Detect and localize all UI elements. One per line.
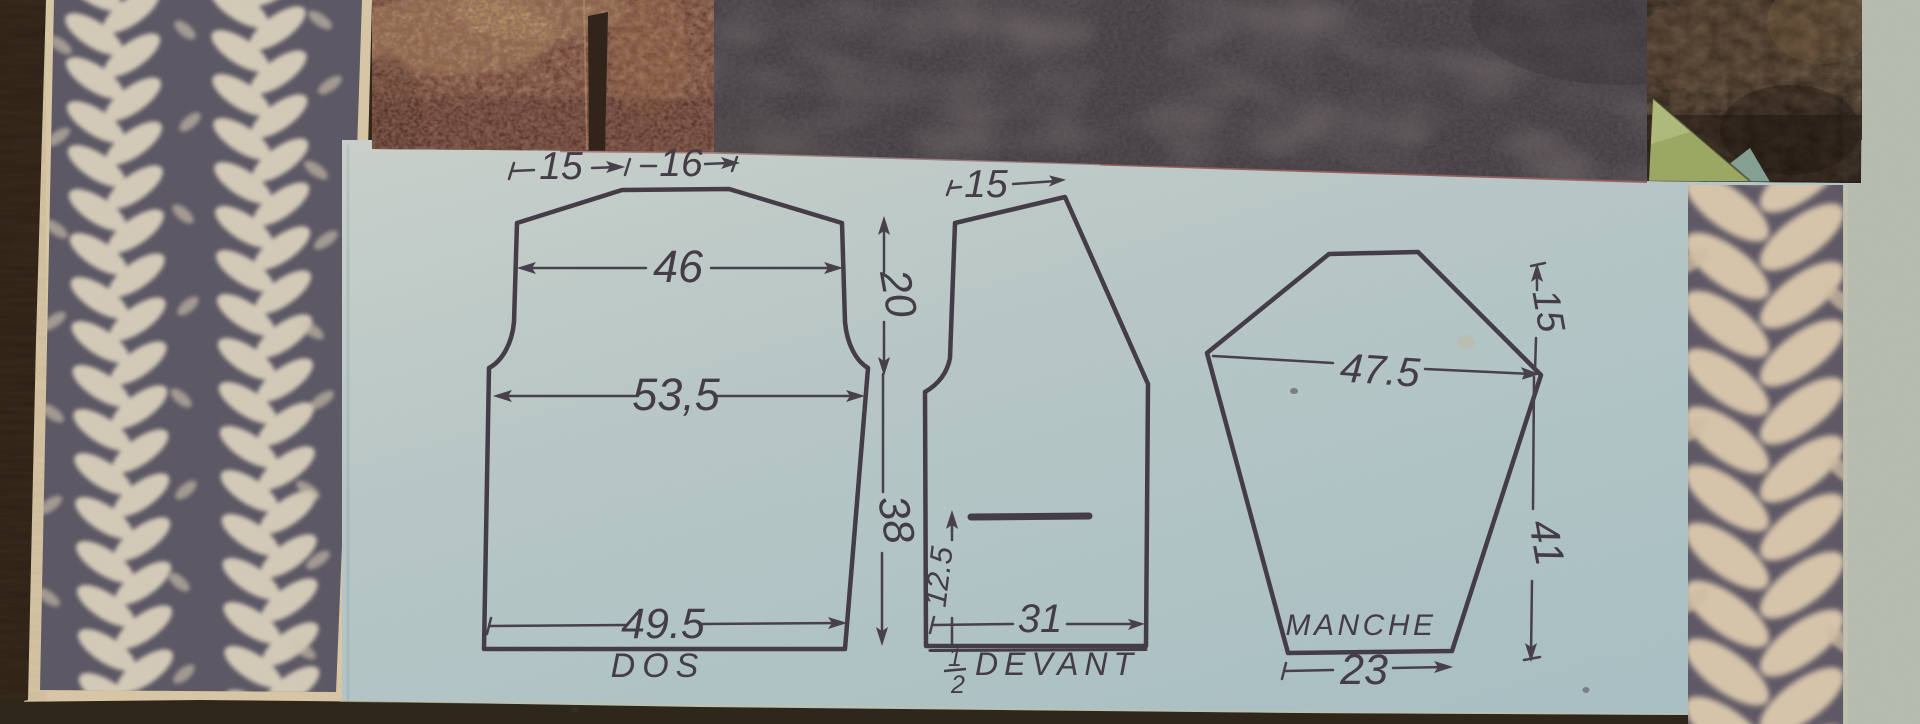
svg-text:15: 15	[539, 145, 583, 188]
svg-text:1: 1	[948, 644, 962, 672]
svg-text:DEVANT: DEVANT	[975, 646, 1139, 682]
svg-text:16: 16	[659, 142, 703, 185]
svg-text:31: 31	[1018, 597, 1063, 641]
svg-text:20: 20	[870, 265, 926, 322]
svg-text:53,5: 53,5	[632, 369, 721, 420]
svg-text:23: 23	[1339, 646, 1388, 694]
svg-text:49.5: 49.5	[621, 600, 706, 648]
svg-text:DOS: DOS	[611, 647, 706, 685]
svg-text:12.5: 12.5	[918, 544, 960, 609]
svg-text:15: 15	[964, 163, 1008, 206]
svg-text:38: 38	[868, 492, 924, 548]
svg-text:MANCHE: MANCHE	[1285, 609, 1436, 642]
svg-text:2: 2	[950, 671, 965, 699]
svg-text:15: 15	[1523, 286, 1572, 336]
svg-text:41: 41	[1520, 516, 1573, 569]
svg-text:47.5: 47.5	[1339, 344, 1422, 395]
svg-text:46: 46	[653, 241, 704, 292]
